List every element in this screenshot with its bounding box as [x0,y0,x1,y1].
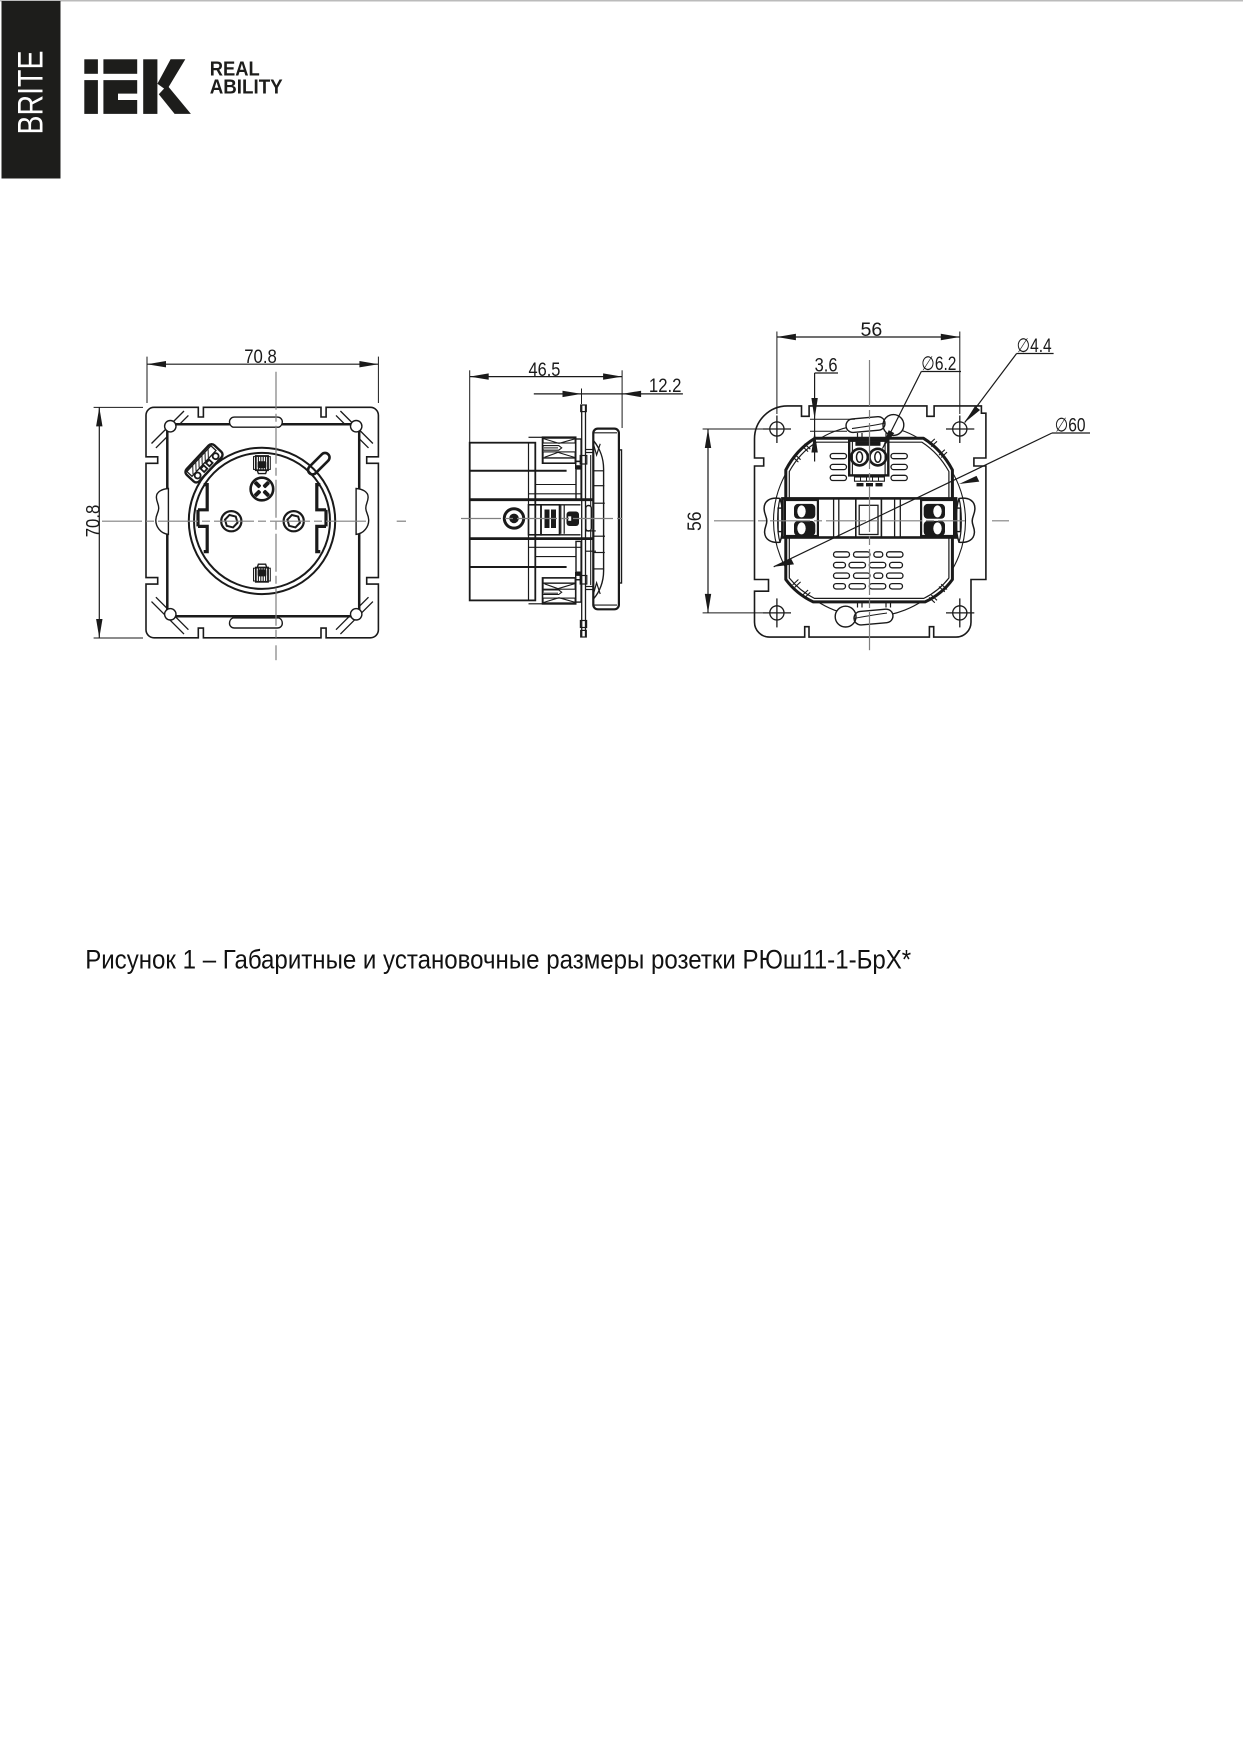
svg-text:46.5: 46.5 [529,359,561,381]
svg-text:BRITE: BRITE [12,51,51,135]
svg-text:ABILITY: ABILITY [210,77,284,99]
svg-text:Рисунок 1 – Габаритные и устан: Рисунок 1 – Габаритные и установочные ра… [85,945,911,975]
svg-text:56: 56 [684,511,706,531]
svg-text:56: 56 [861,319,883,341]
svg-text:70.8: 70.8 [83,505,105,538]
